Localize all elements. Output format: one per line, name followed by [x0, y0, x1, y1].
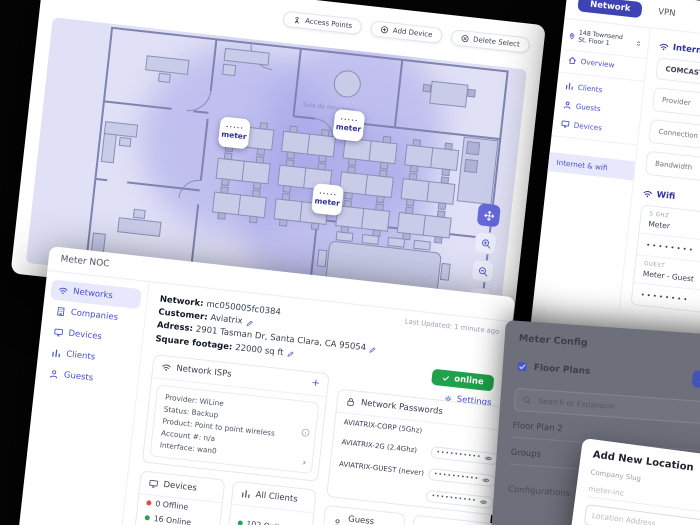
access-points-icon	[293, 16, 302, 25]
networks-label: Networks	[73, 287, 114, 301]
sort-icon	[635, 39, 643, 47]
internet-wifi-label: Internet & wifi	[556, 158, 608, 173]
guest-clients-title: Guess Clients	[347, 514, 397, 525]
delete-select-label: Delete Select	[473, 36, 520, 49]
guest-clients-box[interactable]: Guess Clients 0 Online ›	[318, 504, 406, 525]
tab-network[interactable]: Network	[577, 0, 643, 18]
location-label: 148 Townsend St, Floor 1	[578, 30, 633, 50]
access-point-marker[interactable]: ••••• meter	[311, 183, 344, 216]
online-status-button[interactable]: online	[432, 369, 495, 392]
chart-icon	[51, 348, 62, 359]
all-clients-online-count: 102 Online	[246, 519, 289, 525]
pin-icon	[568, 32, 576, 40]
devices-offline-count: 0 Offline	[155, 499, 189, 512]
zoom-out-icon	[477, 265, 489, 277]
isp-details[interactable]: Provider: WiLine Status: Backup Product:…	[150, 384, 320, 474]
monitor-icon	[560, 119, 570, 129]
chart-icon	[240, 488, 251, 499]
move-icon	[483, 209, 495, 221]
checkbox-icon[interactable]	[516, 361, 528, 373]
ssid-2g: AVIATRIX-2G (2.4Ghz)	[341, 438, 427, 455]
online-dot	[145, 515, 151, 521]
monitor-icon	[53, 327, 64, 338]
x-circle-icon	[461, 34, 470, 43]
network-isps-box: Network ISPs + Provider: WiLine Status: …	[142, 354, 330, 482]
pencil-icon[interactable]	[245, 319, 254, 328]
password-mask: ••••••••	[646, 241, 696, 254]
floor-plans-label: Floor Plans	[533, 363, 686, 384]
online-dot	[237, 520, 243, 525]
password-mask: ••••••••••	[436, 449, 482, 461]
search-icon	[522, 395, 532, 405]
password-pill[interactable]: ••••••••••	[425, 489, 494, 508]
password-pill[interactable]: ••••••••••	[427, 468, 496, 487]
monitor-icon	[148, 478, 159, 489]
tab-vpn[interactable]: VPN	[658, 7, 676, 19]
passwords-title: Network Passwords	[360, 398, 443, 417]
wifi-icon	[58, 285, 69, 296]
all-clients-box[interactable]: All Clients 102 Online ›	[226, 480, 317, 525]
access-points-button[interactable]: Access Points	[282, 11, 362, 36]
password-mask: ••••••••••	[434, 471, 480, 483]
access-point-marker[interactable]: ••••• meter	[218, 116, 251, 149]
add-location-modal: Add New Location Company Slug + Check	[566, 438, 700, 525]
meter-logo: meter	[335, 123, 361, 133]
internet-title: Internet	[672, 43, 700, 57]
info-icon[interactable]	[301, 427, 311, 437]
guests-label: Guests	[63, 370, 93, 383]
configurations-label: Configurations	[508, 484, 571, 498]
pencil-icon[interactable]	[286, 350, 295, 359]
zoom-in-icon	[480, 237, 492, 249]
bandwidth-field[interactable]: Bandwidth	[645, 151, 700, 193]
sidebar-item-internet-wifi[interactable]: Internet & wifi	[548, 152, 636, 180]
wifi-title: Wifi	[656, 190, 676, 202]
add-floor-plan-button[interactable]: Add new Floor Plan +	[691, 370, 700, 394]
home-icon	[567, 55, 577, 65]
wifi-card: 5 GHZ Meter •••••••• Guest Meter - Guest	[630, 204, 700, 321]
password-mask: ••••••••••	[431, 493, 477, 505]
pan-tool-button[interactable]	[477, 203, 501, 227]
pencil-icon[interactable]	[368, 346, 377, 355]
offline-dot	[146, 500, 152, 506]
password-pill[interactable]: ••••••••••	[430, 446, 499, 465]
plus-circle-icon	[381, 25, 390, 34]
overview-label: Overview	[580, 57, 615, 70]
lock-icon	[346, 396, 357, 407]
last-updated: Last Updated: 1 minute ago	[404, 317, 499, 335]
zoom-in-button[interactable]	[474, 231, 498, 255]
password-mask: ••••••••	[640, 290, 690, 303]
chart-icon	[565, 81, 575, 91]
zoom-out-button[interactable]	[470, 259, 494, 283]
ssid-guest: AVIATRIX-GUEST (never)	[339, 460, 425, 477]
devices-box-title: Devices	[163, 480, 197, 494]
person-icon	[562, 100, 572, 110]
companies-label: Companies	[70, 308, 118, 323]
person-icon	[332, 517, 343, 525]
building-icon	[55, 306, 66, 317]
network-panel: Network VPN 148 Townsend St, Floor 1 Ove…	[529, 0, 700, 366]
composite-stage: Access Points Add Device Delete Select	[0, 0, 700, 525]
guest-password-row[interactable]: ••••••••	[632, 283, 700, 320]
delete-select-button[interactable]: Delete Select	[450, 29, 530, 54]
devices-label: Devices	[68, 329, 102, 343]
guests-label: Guests	[575, 102, 601, 114]
meter-logo: meter	[221, 131, 247, 141]
noc-main: Last Updated: 1 minute ago online Settin…	[117, 282, 512, 525]
devices-box[interactable]: Devices 0 Offline 16 Online ›	[134, 470, 225, 525]
online-label: online	[454, 374, 484, 387]
access-point-marker[interactable]: ••••• meter	[332, 109, 365, 142]
clients-label: Clients	[66, 349, 96, 362]
check-icon	[442, 374, 451, 383]
search-input[interactable]	[536, 395, 700, 423]
access-points-label: Access Points	[305, 17, 353, 30]
clients-label: Clients	[577, 83, 602, 95]
add-device-label: Add Device	[392, 27, 432, 39]
network-info: Network:mc050005fc0384 Customer:Aviatrix…	[155, 293, 351, 366]
devices-label: Devices	[573, 121, 602, 133]
eye-icon[interactable]	[482, 476, 491, 485]
eye-icon[interactable]	[484, 454, 493, 463]
chevron-right-icon[interactable]: ›	[302, 459, 307, 468]
add-device-button[interactable]: Add Device	[370, 20, 443, 44]
all-clients-title: All Clients	[255, 490, 298, 505]
meter-logo: meter	[314, 198, 340, 208]
eye-icon[interactable]	[479, 497, 488, 506]
isps-title: Network ISPs	[176, 363, 307, 387]
wifi-icon	[658, 41, 669, 52]
add-isp-button[interactable]: +	[311, 378, 320, 389]
devices-online-count: 16 Online	[153, 514, 191, 525]
person-icon	[48, 369, 59, 380]
wifi-icon	[642, 188, 653, 199]
wifi-icon	[161, 362, 172, 373]
